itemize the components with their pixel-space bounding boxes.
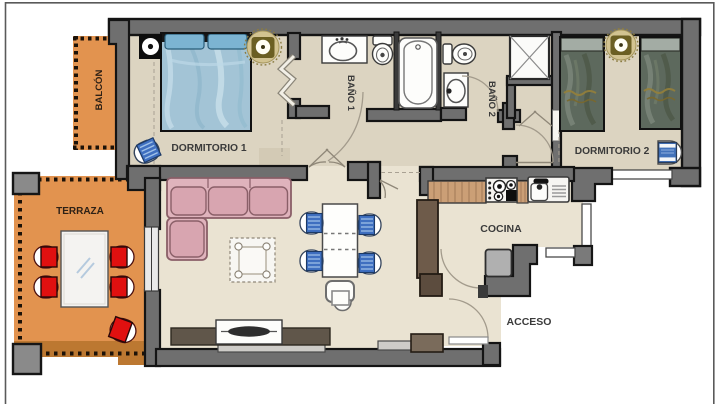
- svg-text:BAÑO 2: BAÑO 2: [486, 81, 497, 117]
- svg-text:BALCÓN: BALCÓN: [93, 70, 105, 111]
- svg-text:DORMITORIO 1: DORMITORIO 1: [171, 143, 247, 154]
- svg-text:BAÑO 1: BAÑO 1: [345, 75, 356, 112]
- svg-text:TERRAZA: TERRAZA: [56, 206, 104, 217]
- svg-text:DORMITORIO 2: DORMITORIO 2: [575, 146, 650, 157]
- svg-text:COCINA: COCINA: [480, 223, 522, 235]
- svg-text:ACCESO: ACCESO: [507, 316, 552, 328]
